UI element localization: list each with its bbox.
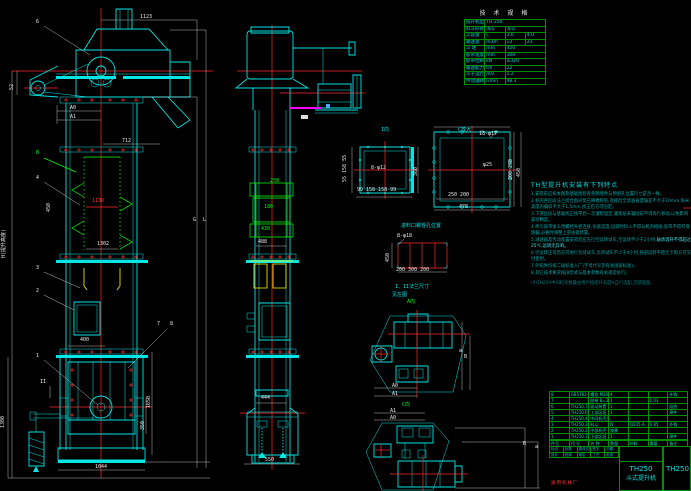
front-view [8, 8, 213, 478]
label-gridb: 200 300 200 [396, 268, 429, 273]
label-bB: B [36, 151, 39, 156]
label-d450g: 450 [386, 253, 391, 262]
label-tA1: A1 [392, 392, 398, 397]
label-d478: 478 [459, 205, 468, 210]
note-line: 1.安装前应按本图及基础图检查各预埋件与预留孔位置尺寸是否一致。 [531, 192, 691, 198]
label-n8f18: 8-φ18 [397, 234, 412, 239]
product-name: 斗式提升机 [620, 473, 662, 482]
bom-grid: 8GB5782-86螺栓 M20×654外购7胶带 B=30010.036TH2… [549, 391, 688, 440]
bom-table: 8GB5782-86螺栓 M20×654外购7胶带 B=30010.036TH2… [549, 391, 688, 447]
label-d438: 438 [261, 227, 270, 232]
label-f2b: 250 200 [448, 193, 469, 198]
label-d52: 52 [10, 84, 15, 90]
drawing-number: TH250 [663, 446, 691, 491]
label-d444: 444 [261, 396, 270, 401]
note-line: 2.机壳各区段法兰结合面间垫石棉橡胶纸,连接后全高垂直度偏差不大于10mm,每米… [531, 199, 691, 211]
label-d250: 250 [270, 179, 279, 184]
table-row: 1TH250.1下部区段1焊件 [550, 434, 688, 440]
label-d350: 350 [141, 421, 146, 430]
label-lblGrid: 进料口螺栓孔位置 [401, 224, 441, 229]
label-lblSee1: I、II法兰尺寸 [395, 285, 429, 290]
label-d450L: 450 [47, 203, 52, 212]
label-lblC: C放大 [458, 128, 471, 133]
label-dII: II [40, 380, 46, 385]
label-d712: 712 [122, 139, 131, 144]
stage-mark-row [620, 447, 662, 462]
label-dG: G [193, 218, 196, 223]
notes-block: TH型提升机安装有下列特点 1.安装前应按本图及基础图检查各预埋件与预留孔位置尺… [531, 180, 691, 287]
title-block: 标记处数更改文件号签字日期设计校核审定工艺批准 通用机械厂 TH250 斗式提升… [549, 446, 691, 491]
table-row: 设计校核审定工艺批准 [550, 452, 619, 458]
label-d1300: 1300 [1, 416, 6, 428]
note-line: 7.外购件均按二级标准入厂(字母代号见有关国家标准)。 [531, 264, 691, 270]
label-d180: 180 [264, 205, 273, 210]
label-t2a: a [535, 445, 538, 450]
product-model: TH250 [620, 465, 662, 473]
spec-table: 技 术 规 格 提升机型号TH 250料斗形式浅斗深斗斗容量L3.04.0输送量… [464, 8, 546, 85]
note-line: 3.下部区段与基础找正找平后一次灌浆固定,灌浆层未凝固前不得再行移动,以免影响安… [531, 212, 691, 224]
label-n8f12: 8-φ12 [371, 166, 386, 171]
label-t2B: B [523, 442, 526, 447]
spec-table-grid: 提升机型号TH 250料斗形式浅斗深斗斗容量L3.04.0输送量m3/h1323… [464, 19, 546, 85]
label-b1: 1 [36, 354, 39, 359]
label-d488: 488 [258, 240, 267, 245]
label-f1b: 99 158 158 99 [357, 188, 396, 193]
label-d550: 550 [265, 458, 274, 463]
label-dA0: A0 [70, 106, 76, 111]
side-view [236, 25, 365, 470]
signature-grid: 标记处数更改文件号签字日期设计校核审定工艺批准 [549, 446, 619, 458]
note-line: 5.减速器及传动装置安装后应先行空运转试车,空运转不少于2小时,轴承温升不得超过… [531, 238, 691, 250]
label-b7: 7 [157, 322, 160, 327]
label-b3: 3 [36, 266, 39, 271]
label-b2: 2 [36, 289, 39, 294]
note-line: 8.其它技术要求按JB型式与基本参数有关规定执行。 [531, 271, 691, 277]
label-dA1: A1 [70, 115, 76, 120]
label-f2r2: 450 [517, 168, 522, 177]
notes-footnote: (9)TH250中间机壳数量由用户按提升高度H自行选配,见基础图。 [531, 281, 691, 287]
label-tA0: A0 [392, 384, 398, 389]
product-cell: TH250 斗式提升机 [619, 446, 663, 491]
note-highlight: 轴承温升不得超过25℃,运转无异响。 [531, 238, 691, 249]
label-dL: L [203, 218, 206, 223]
label-ta1: a [459, 349, 462, 354]
label-tB1: B [464, 355, 467, 360]
top-view-c [366, 413, 540, 491]
label-b8: 8 [170, 322, 173, 327]
label-d1302: 1302 [97, 242, 109, 247]
company-name: 通用机械厂 [551, 480, 617, 486]
label-b4: 4 [36, 176, 39, 181]
label-f2r: 200 250 [509, 159, 514, 180]
table-row: 传动轴转速r/min48.3 [465, 78, 546, 85]
notes-list: 1.安装前应按本图及基础图检查各预埋件与预留孔位置尺寸是否一致。2.机壳各区段法… [531, 192, 691, 277]
label-d360: 360 [414, 167, 419, 176]
label-d1044: 1044 [95, 465, 107, 470]
note-line: 4.牵引胶带接头用螺栓夹板连接,张紧适度;运转时料斗不得与机壳相碰,胶带不得打滑… [531, 225, 691, 237]
label-f1l: 55 158 55 [343, 155, 348, 182]
label-lblI: I向 [381, 128, 389, 133]
label-d400: 400 [80, 338, 89, 343]
label-n13f17: 13-φ17 [479, 132, 497, 137]
label-lblCdir: C向 [402, 403, 410, 408]
note-line: 6.空运转正常后方可进行负荷试车,负荷试车不少于4小时,各部运转平稳无卡阻方可交… [531, 251, 691, 263]
notes-heading: TH型提升机安装有下列特点 [531, 180, 691, 189]
label-dphi25: φ25 [483, 163, 492, 168]
label-d1130: 1130 [92, 199, 104, 204]
cad-sheet[interactable]: 技 术 规 格 提升机型号TH 250料斗形式浅斗深斗斗容量L3.04.0输送量… [0, 0, 691, 491]
label-d1650: 1650 [147, 396, 152, 408]
label-lblA: A向 [407, 300, 415, 305]
label-t2A1: A1 [390, 409, 396, 414]
top-view-a [370, 310, 470, 398]
label-d1123: 1123 [140, 15, 152, 20]
spec-table-title: 技 术 规 格 [464, 8, 546, 17]
label-dH: H(提升高度) [2, 229, 7, 258]
label-b6: 6 [36, 20, 39, 25]
label-t2A0: A0 [390, 416, 396, 421]
label-lblSee2: 见左图 [392, 293, 407, 298]
